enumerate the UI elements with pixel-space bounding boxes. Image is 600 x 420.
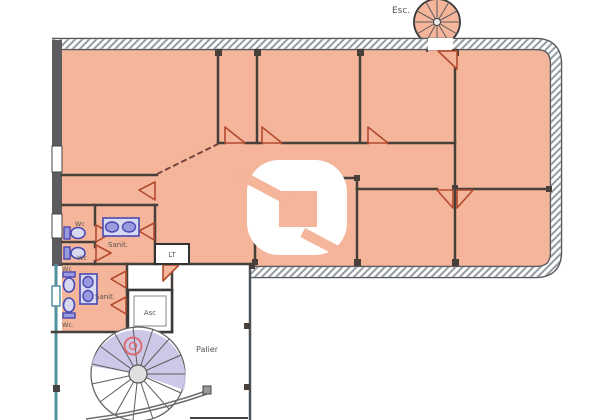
window: [52, 286, 60, 306]
label-esc: Esc.: [392, 6, 410, 16]
toilet-icon: [64, 227, 85, 239]
stair-opening: [428, 38, 453, 50]
sink-icon: [103, 218, 139, 236]
label-lt: LT: [168, 251, 176, 259]
wall-post: [53, 385, 60, 392]
floor-plan: Esc. Wc Wc Sanit. LT Wc Wc. Sanit. Asc P…: [0, 0, 600, 420]
rail-post: [203, 386, 211, 394]
label-wc-upper-2: Wc: [77, 254, 87, 262]
label-wc-lower-2: Wc.: [62, 321, 74, 329]
window: [52, 146, 62, 172]
window: [52, 214, 62, 238]
label-sanit-upper: Sanit.: [108, 241, 128, 249]
label-sanit-lower: Sanit.: [95, 293, 115, 301]
floor-plan-drawing: Esc. Wc Wc Sanit. LT Wc Wc. Sanit. Asc P…: [0, 0, 600, 420]
label-asc: Asc: [144, 309, 156, 317]
label-wc-lower-1: Wc: [62, 265, 72, 273]
label-palier: Palier: [196, 345, 219, 354]
toilet-icon: [63, 298, 75, 318]
lower-left-wall: [52, 264, 60, 420]
stair-hub: [129, 365, 147, 383]
spiral-staircase-main: [91, 327, 186, 420]
toilet-icon: [63, 272, 75, 292]
label-wc-upper-1: Wc: [75, 220, 85, 228]
